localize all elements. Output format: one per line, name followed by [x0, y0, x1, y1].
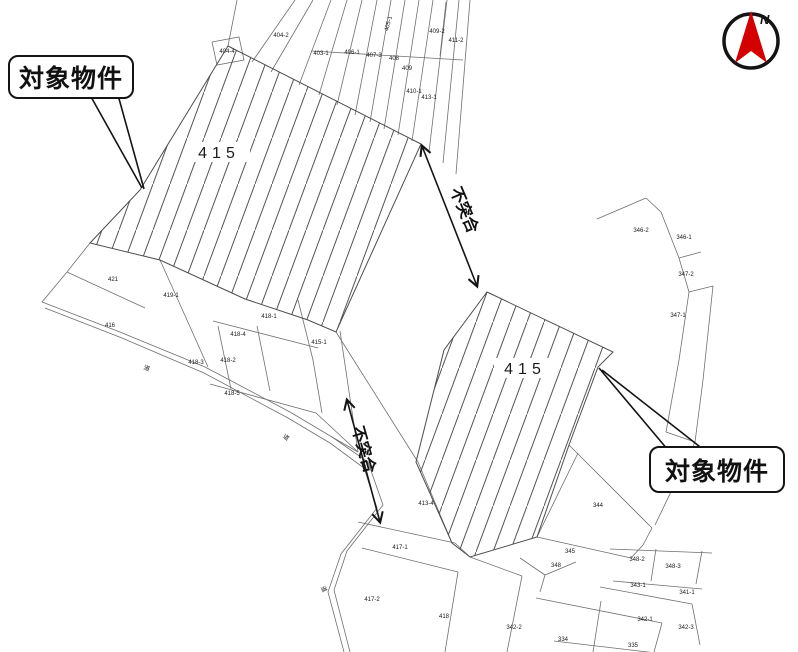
parcel-number-label: 348-2 — [629, 557, 645, 563]
map-boundary-line — [651, 549, 656, 581]
parcel-number-label: 404-4 — [219, 49, 235, 55]
parcel-number-label: 342-2 — [506, 625, 522, 631]
map-boundary-line — [67, 272, 145, 308]
map-boundary-line — [631, 528, 652, 558]
parcel-number-label: 346-2 — [633, 228, 649, 234]
target-property-callout-lower[interactable]: 対象物件 — [649, 446, 785, 493]
parcel-number-label: 404-2 — [273, 33, 289, 39]
map-boundary-line — [412, 0, 433, 141]
map-boundary-line — [654, 623, 662, 652]
map-boundary-line — [540, 575, 545, 592]
map-boundary-line — [554, 641, 682, 652]
parcel-number-label: 418 — [439, 614, 450, 620]
parcel-number-label: 418-1 — [261, 314, 277, 320]
parcel-number-label: 417-2 — [364, 597, 380, 603]
parcel-number-label: 342-3 — [678, 625, 694, 631]
map-boundary-line — [228, 0, 237, 46]
map-boundary-line — [443, 0, 459, 163]
map-boundary-line — [42, 243, 90, 302]
map-boundary-line — [213, 321, 318, 348]
parcel-number-label: 344 — [593, 503, 604, 509]
cadastral-map-page: 415 415 404-4404-2403-1406-1407-34084094… — [0, 0, 798, 652]
map-boundary-line — [45, 308, 377, 652]
parcel-number-label: 418-4 — [230, 332, 246, 338]
compass: N — [724, 11, 778, 68]
parcel-number-label: 道 — [319, 585, 329, 594]
mismatch-label-lower: 不突合 — [348, 424, 380, 476]
parcel-number-label: 347-1 — [670, 313, 686, 319]
map-boundary-line — [358, 522, 455, 543]
map-boundary-line — [445, 572, 458, 652]
map-boundary-line — [679, 252, 701, 258]
map-boundary-line — [362, 548, 458, 572]
parcel-number-label: 406-1 — [344, 50, 360, 56]
parcel-number-label: 418-3 — [188, 360, 204, 366]
parcel-number-label: 342-1 — [637, 617, 653, 623]
parcel-number-label: 335 — [628, 643, 639, 649]
target-parcel-415-lower[interactable] — [416, 292, 613, 557]
highlight-parcels: 415 415 — [90, 46, 613, 557]
target-property-callout-upper[interactable]: 対象物件 — [8, 55, 134, 99]
parcel-number-label: 417-1 — [392, 545, 408, 551]
parcel-number-label: 407-3 — [366, 53, 382, 59]
map-boundary-line — [429, 0, 447, 152]
map-boundary-line — [689, 286, 713, 292]
map-boundary-line — [520, 558, 576, 575]
parcel-number-label: 405-1 — [384, 15, 394, 32]
map-boundary-line — [507, 576, 522, 652]
map-boundary-line — [597, 198, 646, 219]
parcel-number-label: 409-2 — [429, 29, 445, 35]
parcel-number-label: 334 — [558, 637, 569, 643]
parcel-number-label: 413-4 — [418, 501, 434, 507]
parcel-number-label: 345 — [565, 549, 576, 555]
mismatch-label-upper: 不突合 — [446, 184, 483, 237]
parcel-number-label: 403-1 — [313, 51, 329, 57]
parcel-number-label: 343-1 — [630, 583, 646, 589]
map-boundary-line — [537, 537, 631, 558]
map-boundary-line — [456, 0, 470, 174]
callout-label: 対象物件 — [665, 452, 769, 488]
parcel-number-label: 346-1 — [676, 235, 692, 241]
parcel-number-label: 418-2 — [220, 358, 236, 364]
parcel-number-label: 411-2 — [449, 38, 465, 44]
parcel-number-label: 418-5 — [224, 391, 240, 397]
parcel-number-label: 410-1 — [406, 89, 422, 95]
map-boundary-line — [695, 286, 713, 442]
callout-label: 対象物件 — [19, 59, 123, 95]
map-boundary-line — [257, 326, 270, 391]
map-boundary-line — [470, 557, 522, 576]
map-boundary-line — [600, 587, 692, 604]
map-boundary-line — [613, 581, 702, 589]
map-boundary-line — [252, 0, 295, 62]
parcel-number-label: 408 — [389, 56, 400, 62]
parcel-number-415-lower: 415 — [504, 361, 546, 378]
parcel-number-label: 413-1 — [421, 95, 437, 101]
compass-north-label: N — [760, 12, 770, 27]
map-boundary-line — [42, 302, 383, 652]
callout-tail-lower — [599, 368, 704, 450]
parcel-number-label: 419-1 — [163, 293, 179, 299]
callout-tail-upper — [90, 95, 144, 189]
map-boundary-line — [696, 551, 702, 584]
parcel-number-label: 348-3 — [665, 564, 681, 570]
map-boundary-line — [646, 198, 679, 258]
parcel-boundary-lines — [42, 0, 713, 652]
parcel-number-label: 341-1 — [679, 590, 695, 596]
parcel-number-label: 道 — [142, 363, 151, 373]
parcel-number-label: 421 — [108, 277, 119, 283]
map-boundary-line — [593, 601, 601, 652]
parcel-number-label: 道 — [281, 432, 291, 442]
parcel-number-label: 409 — [402, 66, 413, 72]
parcel-number-415-upper: 415 — [198, 145, 240, 162]
map-boundary-line — [569, 445, 652, 528]
target-parcel-415-upper[interactable] — [90, 46, 421, 332]
parcel-number-label: 415-1 — [311, 340, 327, 346]
parcel-number-label: 416 — [105, 323, 116, 329]
parcel-number-label: 347-2 — [678, 272, 694, 278]
map-boundary-line — [299, 0, 331, 85]
map-boundary-line — [610, 549, 712, 553]
parcel-number-label: 348 — [551, 563, 562, 569]
